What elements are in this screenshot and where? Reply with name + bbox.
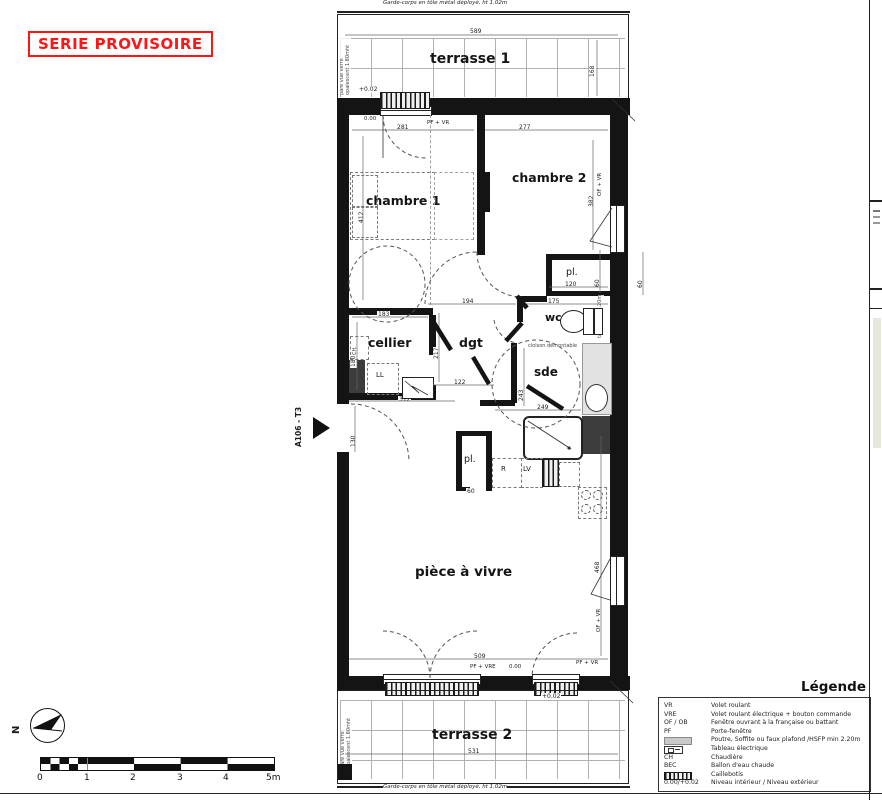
cloison-note: cloison démontable (528, 344, 577, 350)
legend-row: VRVolet roulant (664, 702, 866, 711)
titleblock-divider (869, 308, 882, 309)
legend-key: VR (664, 702, 711, 711)
titleblock-fragment (873, 318, 881, 448)
legend-key: CH (664, 754, 711, 763)
scale-tick: 4 (223, 773, 229, 783)
legend-title: Légende (760, 679, 866, 695)
duct-sde (582, 416, 610, 454)
scale-tick: 1 (84, 773, 90, 783)
pare-vue-note-2: pare vue verre opalescent 1.80mht (341, 704, 352, 768)
dim-entry-door: 130 (350, 435, 357, 448)
dishwasher-label: LV (523, 466, 531, 473)
titleblock-divider (869, 200, 882, 202)
legend-key: VRE (664, 711, 711, 720)
titleblock-fragment (873, 216, 880, 218)
toilet-tank (583, 308, 594, 335)
dim-terrasse1-depth: 168 (589, 65, 596, 78)
dim-window-pier: 60 (594, 278, 601, 288)
level-terrasse2: +0.02 (541, 693, 561, 700)
legend-desc: Porte-fenêtre (711, 728, 752, 735)
north-label: N (12, 726, 23, 734)
worktop-box (559, 462, 580, 487)
wall-sde-left (511, 343, 517, 403)
legend-row: Tableau électrique (664, 745, 866, 754)
dim-sde-depth: 243 (518, 389, 525, 402)
room-label-pl-top: pl. (566, 268, 578, 278)
wall-pl-bottom-left (456, 431, 462, 491)
entrance-opening (337, 404, 349, 452)
dim-chambre2-width: 277 (518, 124, 531, 131)
window-label-ch2-right: OF + VR (597, 173, 603, 196)
dim-pl-top-width: 120 (564, 281, 577, 288)
pare-vue-note-1: pare vue verre opalescent 1.80mht (340, 31, 351, 95)
radiator (542, 459, 559, 487)
room-label-terrasse1: terrasse 1 (430, 52, 510, 67)
window-piece-right (610, 556, 625, 606)
legend-desc: Poutre, Soffite ou faux plafond /HSFP mi… (711, 736, 860, 743)
tableau-electrique-symbol (594, 308, 603, 335)
legend-desc: Volet roulant électrique + bouton comman… (711, 711, 851, 718)
legend-desc: Volet roulant (711, 702, 750, 709)
legend-row: OF / OBFenêtre ouvrant à la française ou… (664, 719, 866, 728)
legend-desc: Caillebotis (711, 771, 743, 778)
fridge-box (492, 458, 522, 488)
titleblock-fragment (873, 222, 880, 224)
washbasin (585, 384, 608, 412)
legend-row: BECBallon d'eau chaude (664, 762, 866, 771)
wall-divider-pilaster (477, 172, 490, 212)
bed-pillow-1 (352, 175, 378, 207)
titleblock-divider (869, 288, 882, 290)
dim-terrasse2-width: 531 (467, 748, 480, 755)
wardrobe-chambre1 (434, 172, 474, 240)
dim-cellier-width: 183 (377, 311, 390, 318)
legend-desc: Tableau électrique (711, 745, 768, 752)
legend-rows: VRVolet roulant VREVolet roulant électri… (664, 702, 866, 788)
boiler-label: CH. (353, 346, 359, 355)
wall-chambre1-bottom (349, 308, 433, 315)
unit-label: A106 - T3 (295, 407, 303, 447)
window-label-bottom-right: PF + VR (576, 660, 598, 666)
washer-label: LL (376, 372, 384, 379)
dim-pl-bottom-width: 60 (466, 488, 476, 495)
wall-chambre2-bottom (546, 254, 610, 260)
dim-piece-depth: 468 (594, 561, 601, 574)
legend-key: 0.00/+0.02 (664, 779, 711, 788)
burner-4 (593, 504, 603, 514)
wall-bottom (337, 676, 630, 690)
titleblock-fragment (873, 210, 880, 212)
legend-row: Poutre, Soffite ou faux plafond /HSFP mi… (664, 736, 866, 745)
dim-pl-top-depth: 60 (637, 279, 644, 289)
window-label-bottom-left: PF + VRE (470, 664, 496, 670)
wall-wc-left (517, 296, 523, 322)
dim-wc-width: 175 (547, 298, 560, 305)
wall-left (337, 115, 349, 688)
legend-desc: Chaudière (711, 754, 743, 761)
dim-dgt-width: 194 (461, 298, 474, 305)
terrasse1-tiles (340, 38, 625, 97)
legend-key: OF / OB (664, 719, 711, 728)
wardrobe-depth-line (430, 115, 431, 305)
garde-corps-top-note: Garde-corps en tôle métal déployé, ht 1.… (383, 0, 507, 6)
room-label-chambre2: chambre 2 (512, 171, 586, 184)
legend-row: PFPorte-fenêtre (664, 728, 866, 737)
burner-2 (593, 490, 603, 500)
scale-bar (40, 757, 275, 771)
room-label-dgt: dgt (459, 336, 483, 349)
burner-3 (581, 504, 591, 514)
room-label-pl-bottom: pl. (464, 455, 476, 465)
entrance-arrow (313, 417, 330, 439)
room-label-cellier: cellier (368, 336, 411, 349)
dim-dgt-depth: 217 (433, 347, 440, 360)
dim-terrasse1-width: 589 (469, 28, 482, 35)
legend-desc: Fenêtre ouvrant à la française ou battan… (711, 719, 838, 726)
scale-tick: 3 (177, 773, 183, 783)
scale-tick: 2 (130, 773, 136, 783)
window-chambre2-right (610, 205, 625, 253)
caillebotis-top (380, 92, 430, 109)
legend-key: BEC (664, 762, 711, 771)
bed-pillow-2 (352, 207, 378, 238)
level-interior-bottom: 0.00 (509, 664, 521, 670)
garde-corps-top-line (337, 11, 630, 13)
north-compass (30, 708, 65, 743)
titleblock-strip (869, 0, 870, 800)
dim-sde-width: 249 (536, 404, 549, 411)
fridge-label: R (501, 466, 506, 473)
legend-desc: Ballon d'eau chaude (711, 762, 774, 769)
dim-chambre2-depth: 382 (588, 195, 595, 208)
dim-entry-width: 122 (453, 379, 466, 386)
provisional-stamp: SERIE PROVISOIRE (28, 31, 213, 57)
room-label-sde: sde (534, 366, 558, 379)
legend-desc: Niveau intérieur / Niveau extérieur (711, 779, 819, 786)
scale-tick: 0 (37, 773, 43, 783)
room-label-terrasse2: terrasse 2 (432, 728, 512, 743)
legend-row: CHChaudière (664, 754, 866, 763)
shower-tray (523, 416, 583, 460)
sheet-frame-line (0, 793, 882, 794)
entry-sink (402, 377, 434, 399)
wall-pl-top-left (546, 254, 552, 296)
legend-row: VREVolet roulant électrique + bouton com… (664, 711, 866, 720)
dim-chambre1-width: 281 (396, 124, 409, 131)
legend-key: PF (664, 728, 711, 737)
level-terrasse1: +0.02 (358, 86, 378, 93)
scale-tick: 5m (266, 773, 281, 783)
wall-sde-bottom (480, 400, 515, 406)
level-interior-top: 0.00 (364, 116, 376, 122)
burner-1 (581, 490, 591, 500)
room-label-piece: pièce à vivre (415, 565, 512, 579)
garde-corps-bottom-note: Garde-corps en tôle métal déployé, ht 1.… (383, 784, 507, 790)
terrasse2-post (338, 764, 352, 780)
legend-row: 0.00/+0.02Niveau intérieur / Niveau exté… (664, 779, 866, 788)
window-label-piece-right: OF + VR (596, 609, 602, 632)
dim-piece-width: 509 (473, 653, 486, 660)
floorplan-sheet: SERIE PROVISOIRE Garde-corps en tôle mét… (0, 0, 882, 800)
